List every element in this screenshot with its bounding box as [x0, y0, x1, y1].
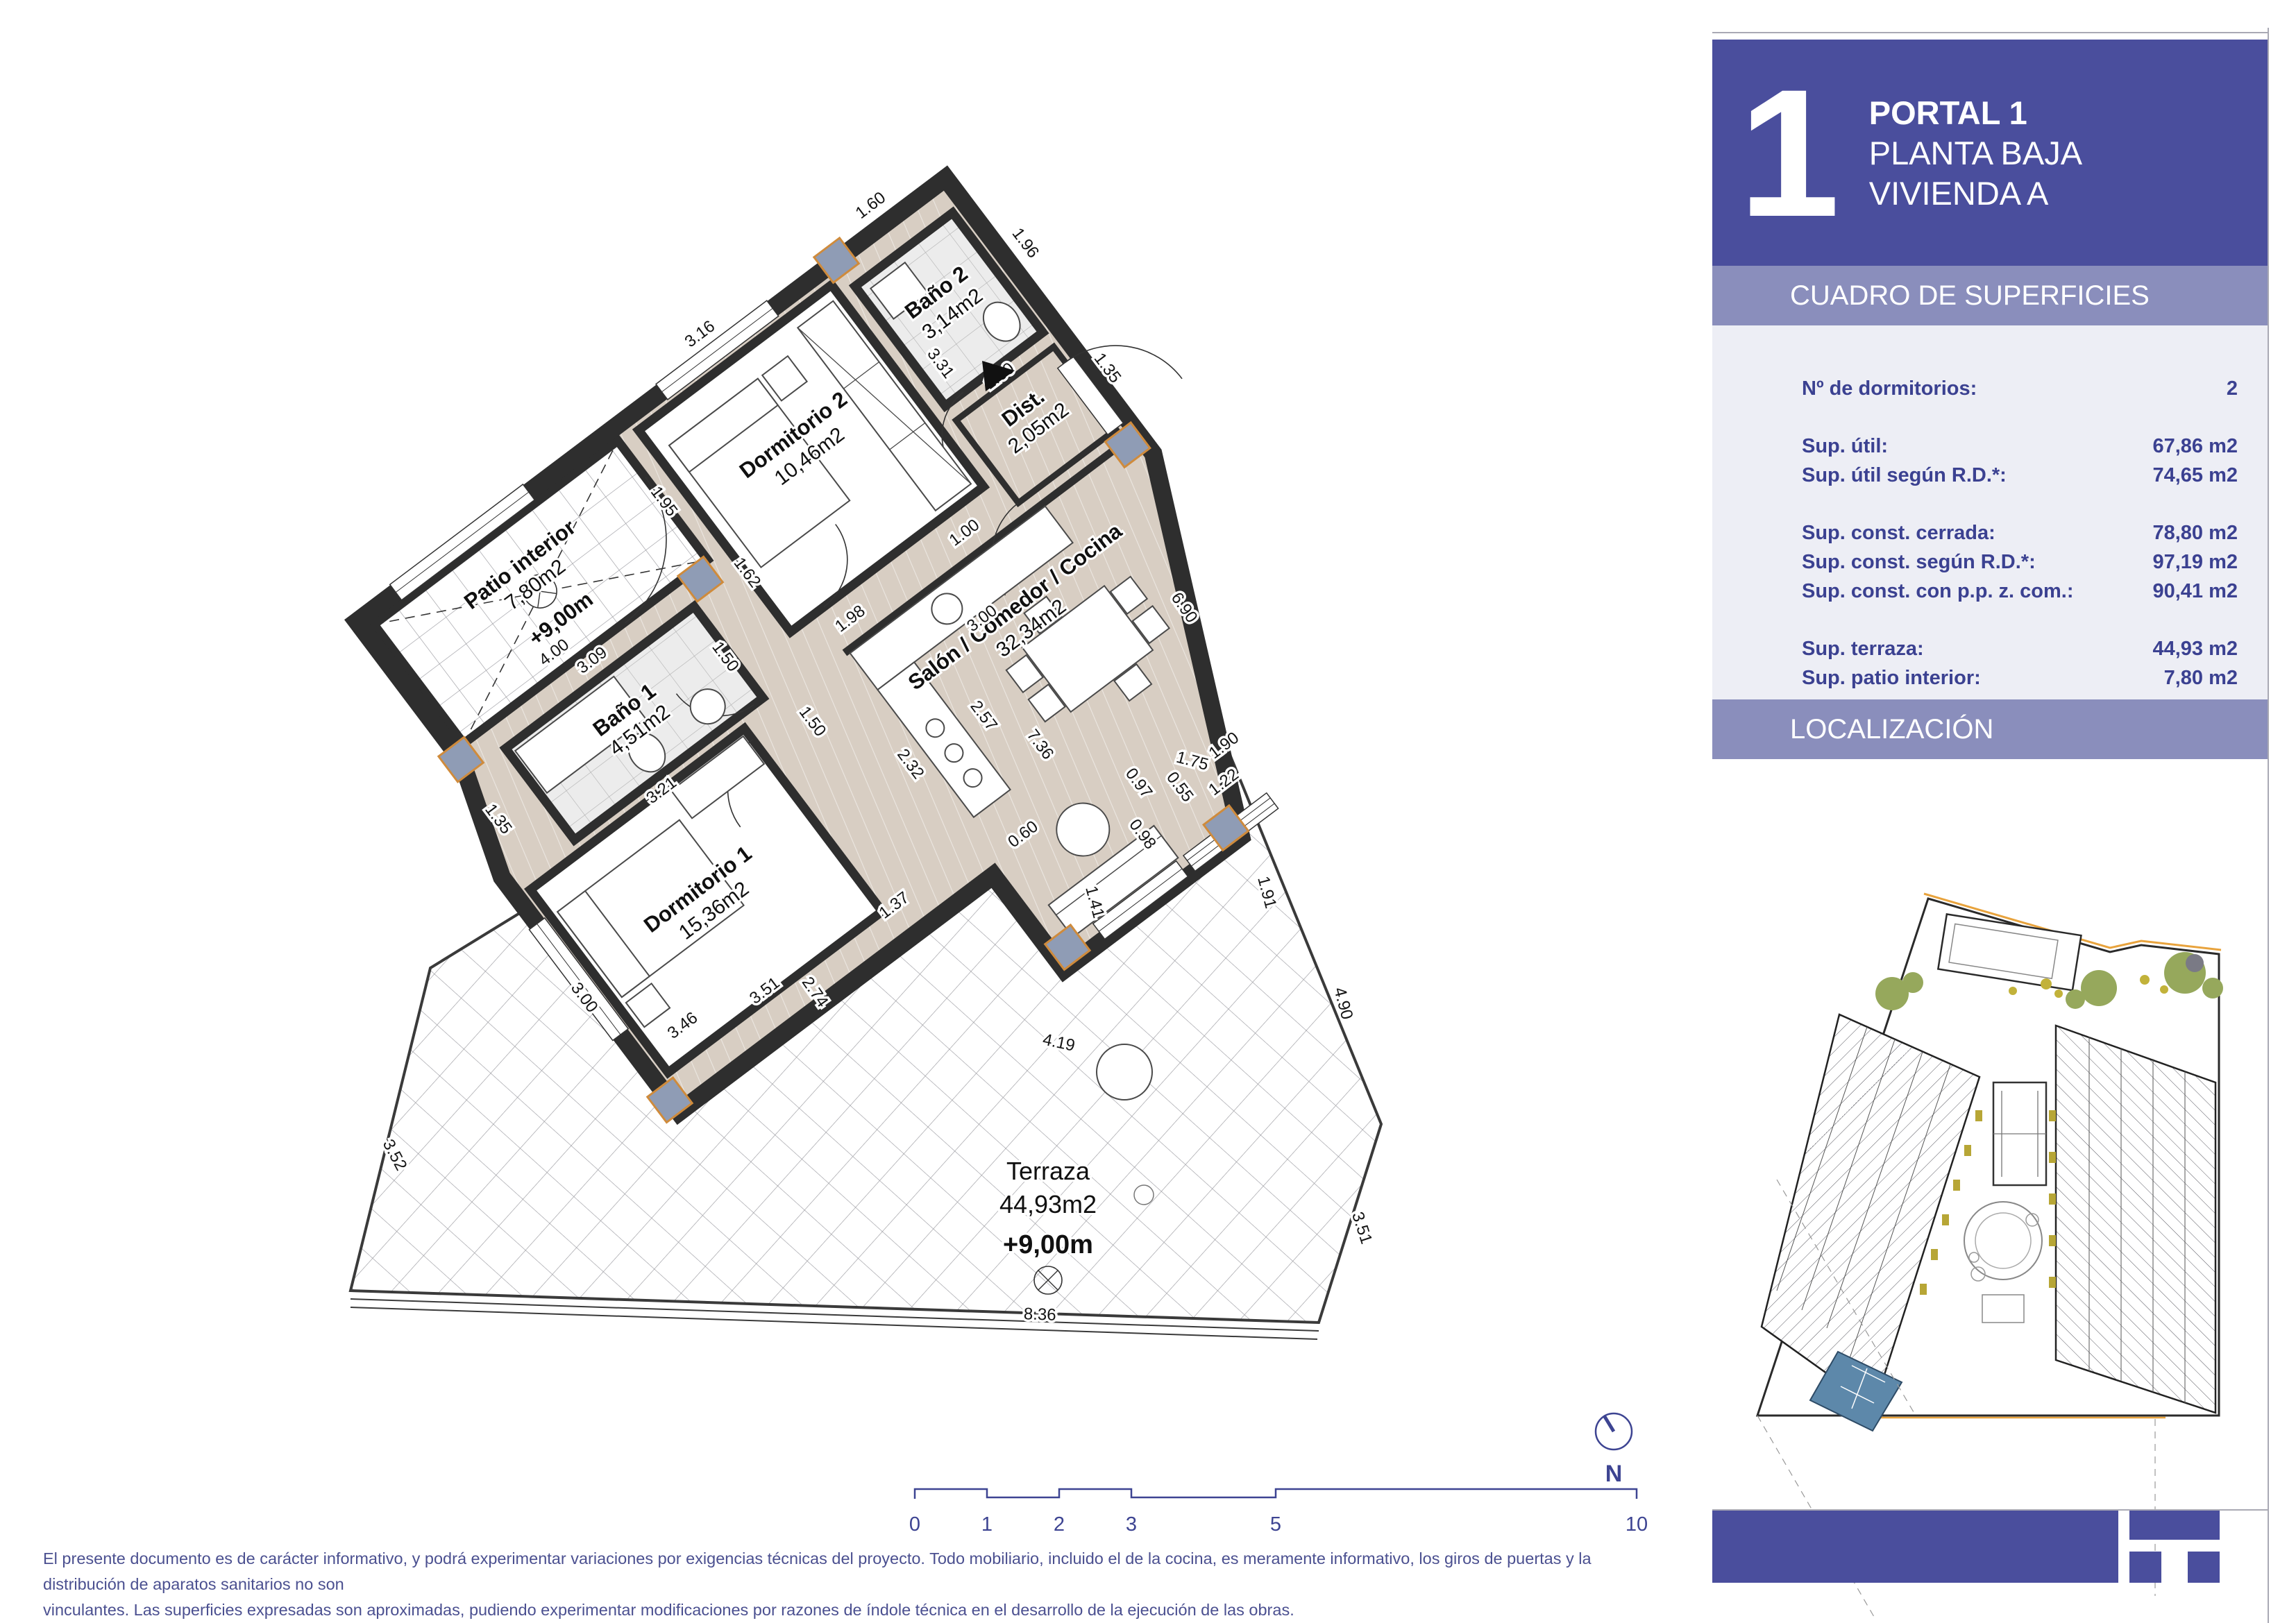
terrace-table	[1097, 1044, 1152, 1100]
scale-bar: 0 1 2 3 5 10	[909, 1489, 1648, 1536]
table-row: Sup. const. cerrada:78,80 m2	[1802, 518, 2238, 547]
surfaces-section-header: CUADRO DE SUPERFICIES	[1712, 266, 2268, 325]
table-row: Nº de dormitorios:2	[1802, 374, 2238, 403]
svg-text:3.51: 3.51	[1348, 1209, 1376, 1246]
disclaimer-line1: El presente documento es de carácter inf…	[43, 1546, 1626, 1597]
disclaimer: El presente documento es de carácter inf…	[43, 1546, 1626, 1623]
north-arrow-icon: N	[1596, 1413, 1632, 1487]
table-row: Sup. terraza:44,93 m2	[1802, 634, 2238, 663]
disclaimer-line2: vinculantes. Las superficies expresadas …	[43, 1597, 1626, 1623]
page-right-border	[2268, 28, 2269, 1623]
surfaces-title: CUADRO DE SUPERFICIES	[1790, 280, 2150, 312]
table-row: Sup. útil según R.D.*:74,65 m2	[1802, 461, 2238, 490]
svg-text:44,93m2: 44,93m2	[999, 1190, 1097, 1218]
svg-text:1: 1	[981, 1513, 993, 1536]
svg-text:5: 5	[1270, 1513, 1281, 1536]
svg-text:10: 10	[1626, 1513, 1648, 1536]
svg-text:8.36: 8.36	[1023, 1305, 1056, 1325]
portal-big-number: 1	[1739, 80, 1833, 226]
portal-line: PORTAL 1	[1869, 93, 2082, 133]
table-row: Sup. const. con p.p. z. com.:90,41 m2	[1802, 577, 2238, 606]
localization-section-header: LOCALIZACIÓN	[1712, 699, 2268, 759]
brand-logo-square	[2129, 1552, 2161, 1583]
svg-text:Terraza: Terraza	[1006, 1157, 1090, 1185]
table-row: Sup. patio interior:7,80 m2	[1802, 663, 2238, 692]
svg-text:3: 3	[1126, 1513, 1137, 1536]
surfaces-table: Nº de dormitorios:2 Sup. útil:67,86 m2 S…	[1712, 325, 2268, 699]
brand-logo-square	[2188, 1552, 2220, 1583]
site-building-right	[2056, 1026, 2215, 1413]
localization-title: LOCALIZACIÓN	[1790, 714, 1993, 745]
svg-text:2: 2	[1054, 1513, 1065, 1536]
table-row: Sup. útil:67,86 m2	[1802, 432, 2238, 461]
svg-text:0: 0	[909, 1513, 920, 1536]
unit-header: 1 PORTAL 1 PLANTA BAJA VIVIENDA A	[1712, 40, 2268, 266]
table-row: Sup. const. según R.D.*:97,19 m2	[1802, 547, 2238, 577]
brand-logo-bar	[2129, 1511, 2220, 1540]
dwelling-line: VIVIENDA A	[1869, 173, 2082, 214]
north-label: N	[1605, 1461, 1623, 1487]
unit-title-block: PORTAL 1 PLANTA BAJA VIVIENDA A	[1869, 93, 2082, 214]
svg-text:+9,00m: +9,00m	[1003, 1230, 1093, 1259]
footer-band	[1712, 1511, 2118, 1583]
floor-line: PLANTA BAJA	[1869, 133, 2082, 173]
sidebar-top-border	[1712, 32, 2268, 33]
site-plan	[1757, 894, 2223, 1617]
